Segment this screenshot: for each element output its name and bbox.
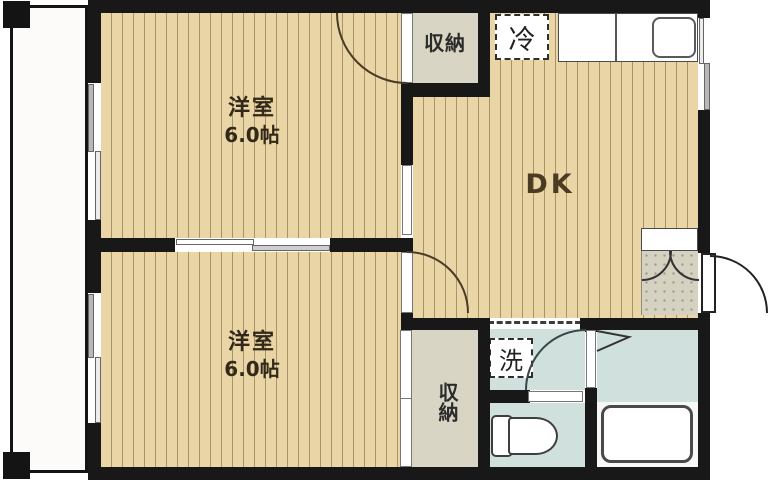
shoe-cabinet-door-arc-left [642, 251, 671, 280]
floor-plan: 冷 洗 [0, 0, 772, 482]
room2-door-arc [407, 252, 468, 313]
closet-top-door-arc [337, 13, 407, 83]
room2-size: 6.0帖 [152, 357, 352, 382]
closet-top-label: 収納 [410, 31, 480, 56]
bathroom-folding-door [597, 331, 629, 351]
room1-label: 洋室 6.0帖 [152, 95, 352, 148]
room1-name: 洋室 [152, 95, 352, 123]
door-swing-arcs [0, 0, 772, 482]
entry-door-arc [710, 256, 767, 313]
washroom-door-arc [526, 330, 586, 390]
closet-bottom-label: 収納 [431, 366, 459, 438]
room1-size: 6.0帖 [152, 123, 352, 148]
shoe-cabinet-door-arc-right [670, 251, 699, 280]
dk-label: DK [505, 168, 595, 202]
room2-label: 洋室 6.0帖 [152, 329, 352, 382]
room2-name: 洋室 [152, 329, 352, 357]
